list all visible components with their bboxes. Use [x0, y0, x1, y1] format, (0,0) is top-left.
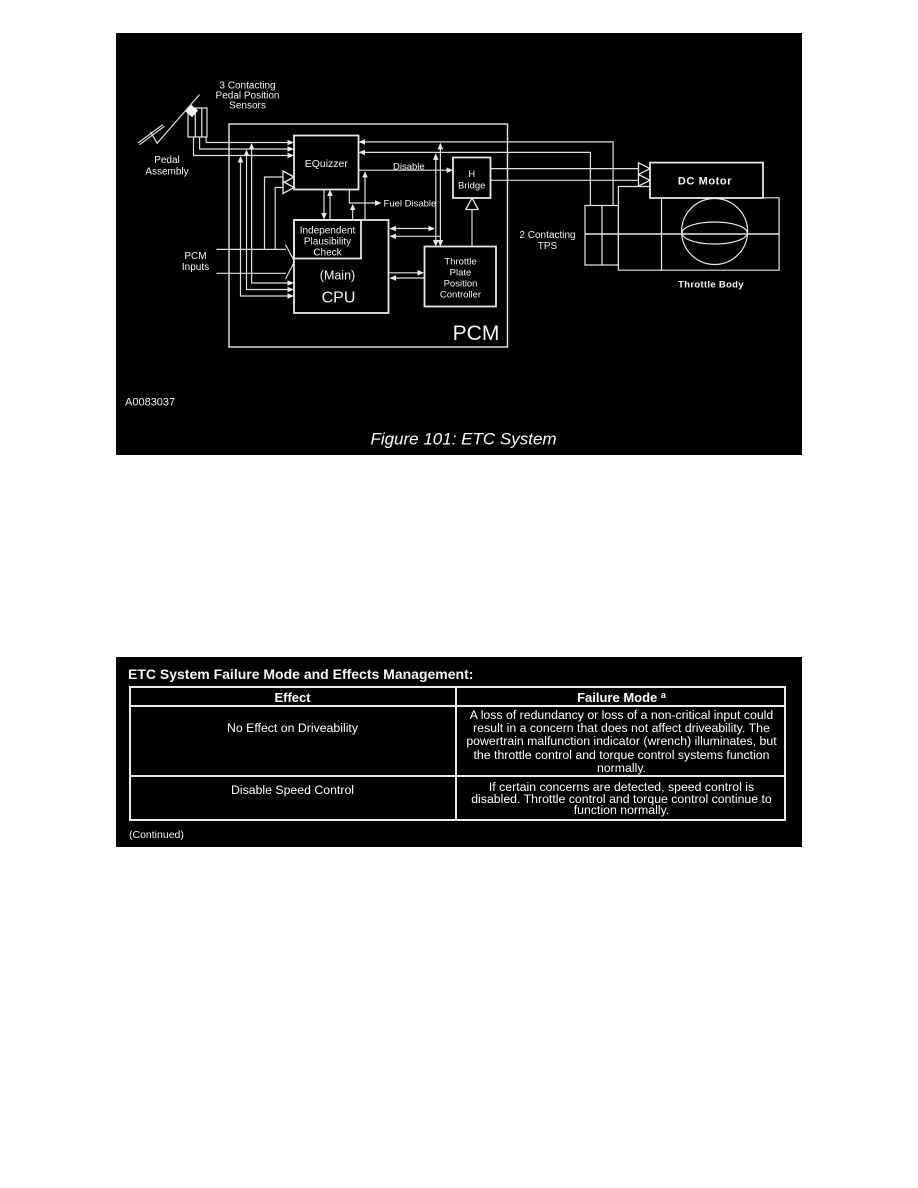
svg-text:Figure 101: ETC System: Figure 101: ETC System — [370, 430, 556, 449]
svg-text:Plausibility: Plausibility — [304, 237, 351, 248]
svg-text:2 Contacting: 2 Contacting — [519, 230, 575, 241]
svg-text:Throttle: Throttle — [444, 257, 476, 268]
svg-text:(Main): (Main) — [320, 269, 355, 283]
svg-text:PCM: PCM — [184, 251, 206, 262]
svg-text:Check: Check — [313, 248, 342, 259]
svg-text:CPU: CPU — [322, 290, 356, 307]
svg-text:A0083037: A0083037 — [125, 397, 175, 409]
svg-text:Independent: Independent — [300, 226, 356, 237]
svg-text:DC Motor: DC Motor — [678, 176, 732, 188]
svg-text:Bridge: Bridge — [458, 181, 485, 192]
svg-text:Fuel Disable: Fuel Disable — [384, 199, 437, 210]
svg-text:Plate: Plate — [450, 268, 472, 279]
svg-text:Throttle Body: Throttle Body — [678, 280, 744, 291]
svg-text:Position: Position — [444, 279, 478, 290]
svg-text:Controller: Controller — [440, 290, 481, 301]
svg-text:Disable: Disable — [393, 162, 425, 173]
svg-text:Pedal: Pedal — [154, 155, 180, 166]
svg-text:Assembly: Assembly — [145, 166, 188, 177]
svg-text:EQuizzer: EQuizzer — [305, 158, 349, 170]
svg-text:TPS: TPS — [538, 241, 558, 252]
svg-text:Inputs: Inputs — [182, 262, 209, 273]
svg-text:Sensors: Sensors — [229, 101, 266, 112]
svg-text:PCM: PCM — [453, 322, 500, 345]
svg-text:H: H — [468, 169, 475, 180]
